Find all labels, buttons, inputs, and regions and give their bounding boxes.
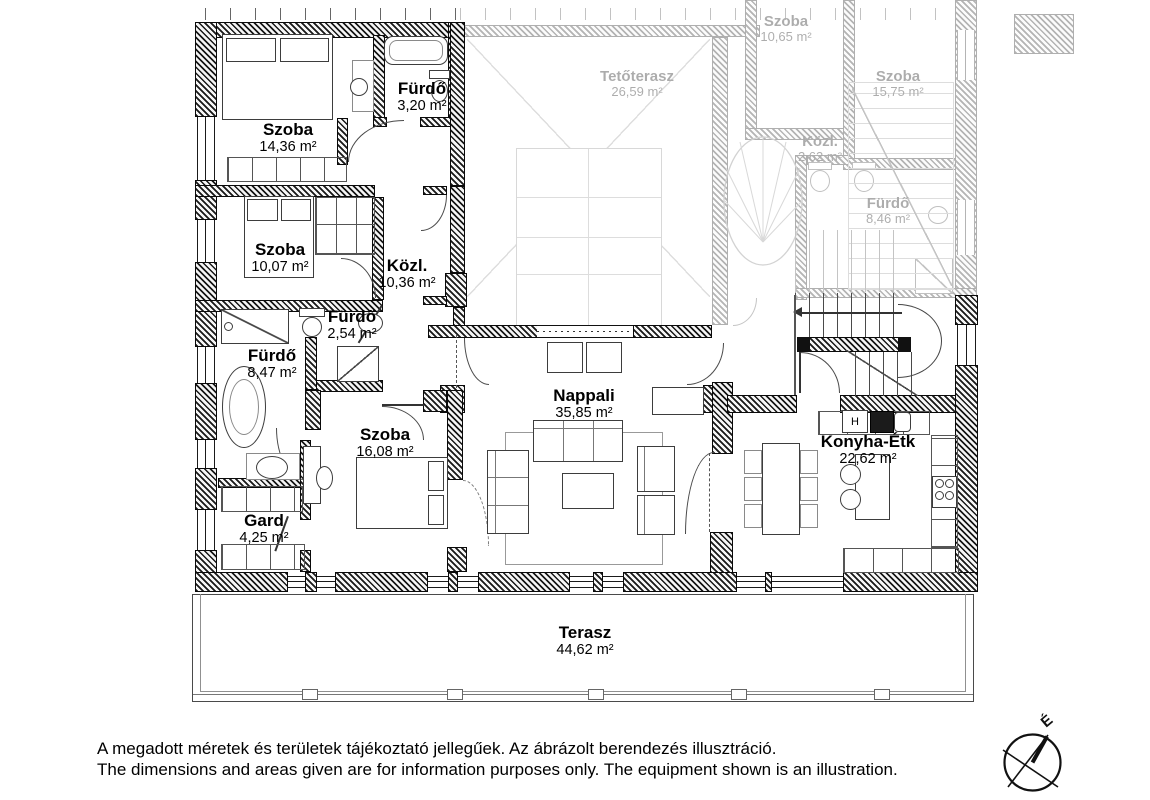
- room-label-szoba-faded-2: Szoba 15,75 m²: [843, 68, 953, 100]
- tv-cabinet: [547, 342, 583, 373]
- pillow: [281, 199, 311, 221]
- wardrobe: [227, 157, 347, 182]
- skylight-mullion: [517, 237, 661, 238]
- burner: [945, 491, 954, 500]
- wardrobe: [221, 486, 303, 512]
- room-area: 26,59 m²: [582, 85, 692, 100]
- door-leaf: [799, 352, 801, 393]
- window: [428, 576, 448, 588]
- shower-head: [224, 322, 233, 331]
- wardrobe: [221, 544, 305, 570]
- bathtub-inner: [389, 40, 443, 61]
- armchair: [637, 495, 675, 535]
- window: [957, 200, 975, 255]
- room-area: 14,36 m²: [233, 139, 343, 156]
- wall-segment: [305, 390, 321, 430]
- wall-segment: [448, 572, 458, 592]
- floor-plan-canvas: Tetőterasz 26,59 m² Szoba 10,65 m² Szoba…: [0, 0, 1150, 800]
- stair-steps-upper: [795, 293, 905, 337]
- wall-segment: [593, 572, 603, 592]
- disclaimer-line-hu: A megadott méretek és területek tájékozt…: [97, 739, 776, 759]
- room-label-furdo-3: Fürdő 8,47 m²: [217, 346, 327, 382]
- toilet: [429, 70, 450, 79]
- wall-segment: [843, 572, 978, 592]
- room-label-gard: Gard 4,25 m²: [209, 511, 319, 547]
- room-name: Közl.: [765, 133, 875, 150]
- dining-table: [762, 443, 800, 535]
- chair: [800, 477, 818, 501]
- window: [197, 347, 215, 383]
- stair-steps-faded: [795, 230, 905, 292]
- wall-segment: [195, 22, 217, 117]
- chair: [744, 450, 762, 474]
- room-area: 22,62 m²: [813, 451, 923, 468]
- room-label-szoba-3: Szoba 16,08 m²: [330, 425, 440, 461]
- room-area: 10,65 m²: [731, 30, 841, 45]
- armchair-line: [644, 496, 645, 534]
- room-area: 16,08 m²: [330, 444, 440, 461]
- window: [603, 576, 623, 588]
- skylight-mullion: [517, 197, 661, 198]
- wall-segment: [955, 295, 978, 325]
- sofa-back-line: [495, 451, 496, 533]
- wall-segment: [428, 325, 540, 338]
- room-area: 44,62 m²: [530, 642, 640, 659]
- window: [317, 576, 335, 588]
- disclaimer-line-en: The dimensions and areas given are for i…: [97, 760, 898, 780]
- wall-segment: [478, 572, 570, 592]
- pillow: [428, 495, 444, 525]
- room-label-szoba-faded-1: Szoba 10,65 m²: [731, 13, 841, 45]
- wall-segment: [423, 296, 447, 305]
- room-label-szoba-2: Szoba 10,07 m²: [225, 240, 335, 276]
- sliding-door: [456, 335, 458, 388]
- room-label-furdo-2: Fürdő 2,54 m²: [297, 307, 407, 343]
- kitchen-sink: [870, 411, 894, 433]
- room-area: 35,85 m²: [529, 405, 639, 422]
- wall-segment: [423, 390, 447, 412]
- room-name: Tetőterasz: [582, 68, 692, 85]
- burner: [945, 479, 954, 488]
- room-label-terasz: Terasz 44,62 m²: [530, 623, 640, 659]
- window: [957, 325, 976, 365]
- room-name: Fürdő: [297, 307, 407, 326]
- room-name: Terasz: [530, 623, 640, 642]
- stair-direction-line: [802, 312, 902, 314]
- room-label-furdo-faded: Fürdő 8,46 m²: [833, 195, 943, 227]
- wall-segment: [633, 325, 712, 338]
- room-area: 4,25 m²: [209, 530, 319, 547]
- room-name: Szoba: [225, 240, 335, 259]
- terrace-post: [874, 689, 890, 700]
- window: [772, 576, 843, 588]
- room-name: Gard: [209, 511, 319, 530]
- washbasin: [256, 456, 288, 479]
- window: [737, 576, 765, 588]
- room-area: 2,62 m²: [765, 150, 875, 165]
- sink-basin: [894, 412, 911, 432]
- room-area: 2,54 m²: [297, 326, 407, 343]
- sofa-back-line: [534, 428, 622, 429]
- skylight-mullion: [588, 149, 589, 329]
- tv-cabinet: [586, 342, 622, 373]
- wall-segment: [447, 547, 467, 572]
- room-label-konyha: Konyha-Étk 22,62 m²: [813, 432, 923, 468]
- handrail-newel: [797, 337, 810, 352]
- wall-segment: [623, 572, 737, 592]
- room-label-kozl: Közl. 10,36 m²: [352, 256, 462, 292]
- wall-segment: [195, 383, 217, 440]
- wall-segment: [195, 468, 217, 510]
- terrace-post: [302, 689, 318, 700]
- wall-segment: [335, 572, 428, 592]
- glass-wall: [537, 325, 633, 338]
- bathtub-inner: [229, 379, 259, 435]
- armchair: [637, 446, 675, 492]
- toilet: [810, 170, 830, 192]
- room-label-tetoterasz: Tetőterasz 26,59 m²: [582, 68, 692, 100]
- pillow: [428, 461, 444, 491]
- compass-north-label: É: [1038, 712, 1057, 731]
- wall-segment: [423, 186, 447, 195]
- door-arc: [733, 298, 757, 326]
- kitchen-counter: [843, 548, 959, 573]
- window: [197, 117, 215, 180]
- window: [458, 576, 478, 588]
- room-label-nappali: Nappali 35,85 m²: [529, 386, 639, 422]
- window: [288, 576, 305, 588]
- room-name: Fürdő: [833, 195, 943, 212]
- room-area: 15,75 m²: [843, 85, 953, 100]
- sofa: [487, 450, 529, 534]
- room-name: Szoba: [330, 425, 440, 444]
- wall-segment: [447, 390, 463, 480]
- burner: [935, 491, 944, 500]
- sofa: [533, 420, 623, 462]
- room-name: Szoba: [233, 120, 343, 139]
- room-area: 10,07 m²: [225, 259, 335, 276]
- terrace-post: [731, 689, 747, 700]
- room-area: 10,36 m²: [352, 275, 462, 292]
- shower: [337, 346, 379, 382]
- chair: [744, 477, 762, 501]
- room-name: Szoba: [731, 13, 841, 30]
- door-leaf: [382, 404, 424, 406]
- coffee-table: [562, 473, 614, 509]
- room-name: Fürdő: [217, 346, 327, 365]
- armchair-line: [644, 447, 645, 491]
- skylight: [516, 148, 662, 330]
- room-label-szoba-1: Szoba 14,36 m²: [233, 120, 343, 156]
- skylight-mullion: [517, 274, 661, 275]
- room-label-kozl-faded: Közl. 2,62 m²: [765, 133, 875, 165]
- room-name: Fürdő: [377, 79, 467, 98]
- window: [197, 220, 215, 262]
- compass-north-icon: É: [1000, 712, 1100, 800]
- console-table: [652, 387, 704, 415]
- fridge-label: H: [851, 416, 859, 428]
- stool: [840, 489, 861, 510]
- wall-segment: [727, 395, 797, 413]
- fridge: H: [842, 410, 868, 433]
- pillow: [247, 199, 278, 221]
- chair: [744, 504, 762, 528]
- room-name: Közl.: [352, 256, 462, 275]
- room-area: 8,47 m²: [217, 365, 327, 382]
- window: [197, 440, 215, 468]
- pillow: [280, 38, 329, 62]
- room-name: Szoba: [843, 68, 953, 85]
- room-area: 8,46 m²: [833, 212, 943, 227]
- lamp: [316, 466, 333, 490]
- terrace-post: [588, 689, 604, 700]
- burner: [935, 479, 944, 488]
- washbasin: [350, 78, 368, 96]
- chair: [800, 504, 818, 528]
- wall-segment: [195, 572, 288, 592]
- room-name: Nappali: [529, 386, 639, 405]
- roof-edge-ticks-faded: [460, 8, 980, 20]
- wall-segment: [1014, 14, 1074, 54]
- wall-segment: [460, 25, 760, 37]
- room-area: 3,20 m²: [377, 98, 467, 115]
- wall-segment: [712, 382, 733, 454]
- room-label-furdo-1: Fürdő 3,20 m²: [377, 79, 467, 115]
- room-name: Konyha-Étk: [813, 432, 923, 451]
- wall-segment: [305, 572, 317, 592]
- window: [570, 576, 593, 588]
- wall-segment: [710, 532, 733, 574]
- stair-edge-line: [794, 295, 796, 395]
- terrace-post: [447, 689, 463, 700]
- wall-segment: [765, 572, 772, 592]
- window: [957, 30, 975, 80]
- pillow: [226, 38, 276, 62]
